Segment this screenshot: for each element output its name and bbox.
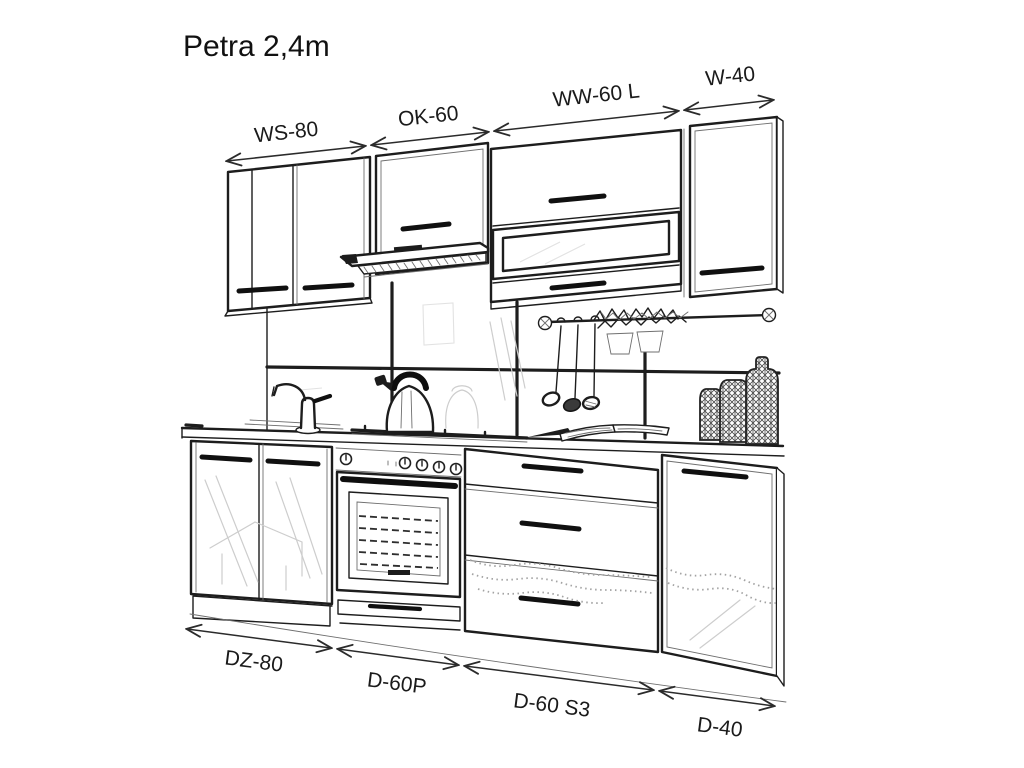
dimension-arrow-ok60 — [372, 132, 488, 145]
hanging-ladle-1 — [541, 326, 561, 408]
wall-cabinet-w40 — [684, 117, 783, 297]
dim-label-w-40: W-40 — [704, 62, 756, 90]
hanging-herb-pots — [594, 308, 688, 354]
hanging-skimmer — [582, 324, 600, 410]
dimension-arrow-d60s3 — [465, 666, 653, 690]
ghost-kettle-sketch — [446, 386, 478, 428]
dim-label-ok-60: OK-60 — [397, 102, 460, 131]
dimension-arrow-d60p — [338, 649, 458, 665]
base-cabinet-dz80 — [191, 441, 332, 626]
drawer-cabinet-d60s3 — [465, 449, 658, 652]
diagram-page: Petra 2,4m — [0, 0, 1024, 768]
oven-drawer — [338, 600, 460, 621]
kettle — [374, 374, 433, 432]
dimension-arrow-ww60l — [495, 111, 678, 131]
oven-door — [337, 472, 460, 597]
dim-label-d-40: D-40 — [696, 713, 744, 742]
dim-label-ws-80: WS-80 — [253, 118, 319, 148]
kitchen-diagram: Petra 2,4m — [0, 0, 1024, 768]
page-title: Petra 2,4m — [183, 30, 330, 63]
dim-label-ww-60-l: WW-60 L — [552, 79, 641, 111]
oven-cabinet-d60p — [336, 448, 462, 630]
dimension-arrow-w40 — [685, 100, 773, 110]
dim-label-dz-80: DZ-80 — [223, 646, 284, 676]
spice-jars — [700, 357, 778, 444]
dim-label-d-60p: D-60P — [366, 668, 428, 698]
wall-cabinet-ww60l — [491, 130, 681, 309]
dimension-arrow-dz80 — [187, 629, 331, 648]
wall-cabinet-ws80 — [225, 157, 372, 316]
base-cabinet-d40 — [662, 455, 784, 686]
dim-label-d-60-s3: D-60 S3 — [512, 689, 591, 722]
